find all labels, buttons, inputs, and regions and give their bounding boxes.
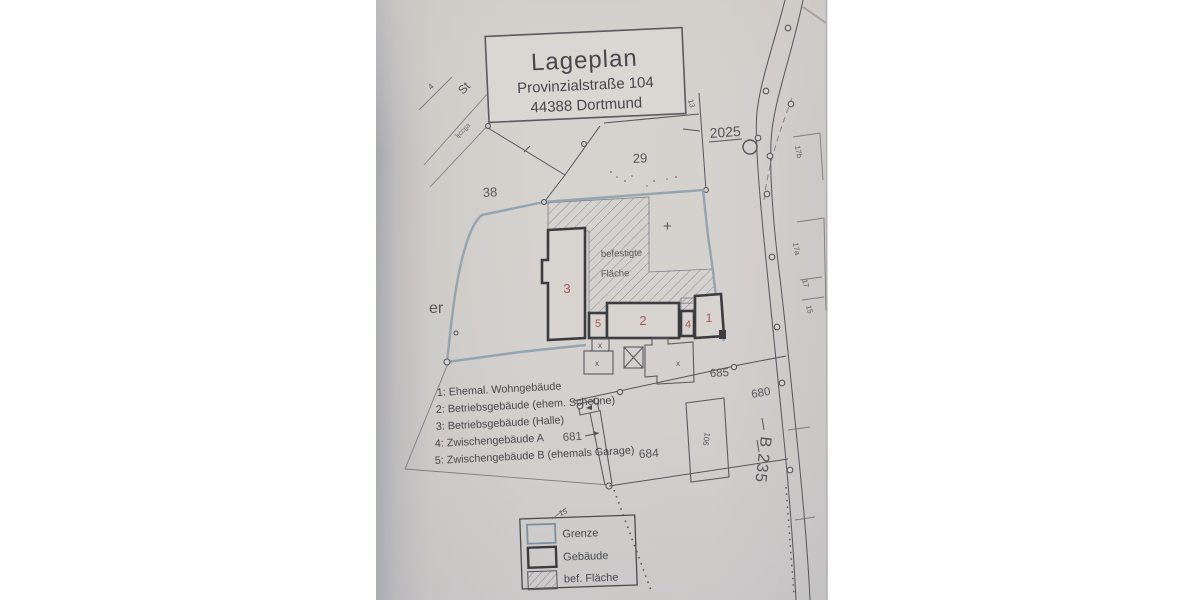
building-number-5: 5 (595, 318, 601, 330)
building-annex-dark (719, 330, 726, 339)
parcel-2025-label: 2025 (709, 123, 741, 141)
legend-label-bef-flaeche: bef. Fläche (564, 572, 619, 586)
parcel-38-label: 38 (482, 184, 497, 200)
cross-mark: + (663, 218, 672, 235)
legend-swatch-paved (528, 571, 558, 590)
parcel-685-label: 685 (710, 367, 730, 380)
parcel-681-label: 681 (562, 431, 582, 444)
site-plan-drawing: 4 St ɐſʇɔɔʇʅ er befestigte Fläche + (0, 0, 1200, 600)
building-number-2: 2 (639, 313, 646, 328)
legend-label-grenze: Grenze (562, 527, 598, 540)
x-mark-3: x (676, 359, 680, 368)
legend-label-gebaeude: Gebäude (563, 550, 609, 564)
building-number-1: 1 (706, 311, 713, 325)
paper-right-edge (827, 0, 828, 600)
plan-title: Lageplan (530, 45, 638, 77)
building-number-4: 4 (685, 319, 691, 331)
x-mark-2: x (595, 359, 599, 368)
x-mark-1: x (598, 341, 602, 350)
parcel-684-label: 684 (638, 446, 659, 461)
paved-area-label-1: befestigte (601, 248, 643, 260)
parcel-29-label: 29 (632, 150, 647, 166)
street-fragment-er: er (429, 300, 444, 317)
title-block: Lageplan Provinzialstraße 104 44388 Dort… (485, 28, 686, 123)
scanned-site-plan-page: 4 St ɐſʇɔɔʇʅ er befestigte Fläche + (0, 0, 1200, 600)
paved-area-label-2: Fläche (601, 268, 630, 280)
building-number-3: 3 (563, 281, 570, 296)
